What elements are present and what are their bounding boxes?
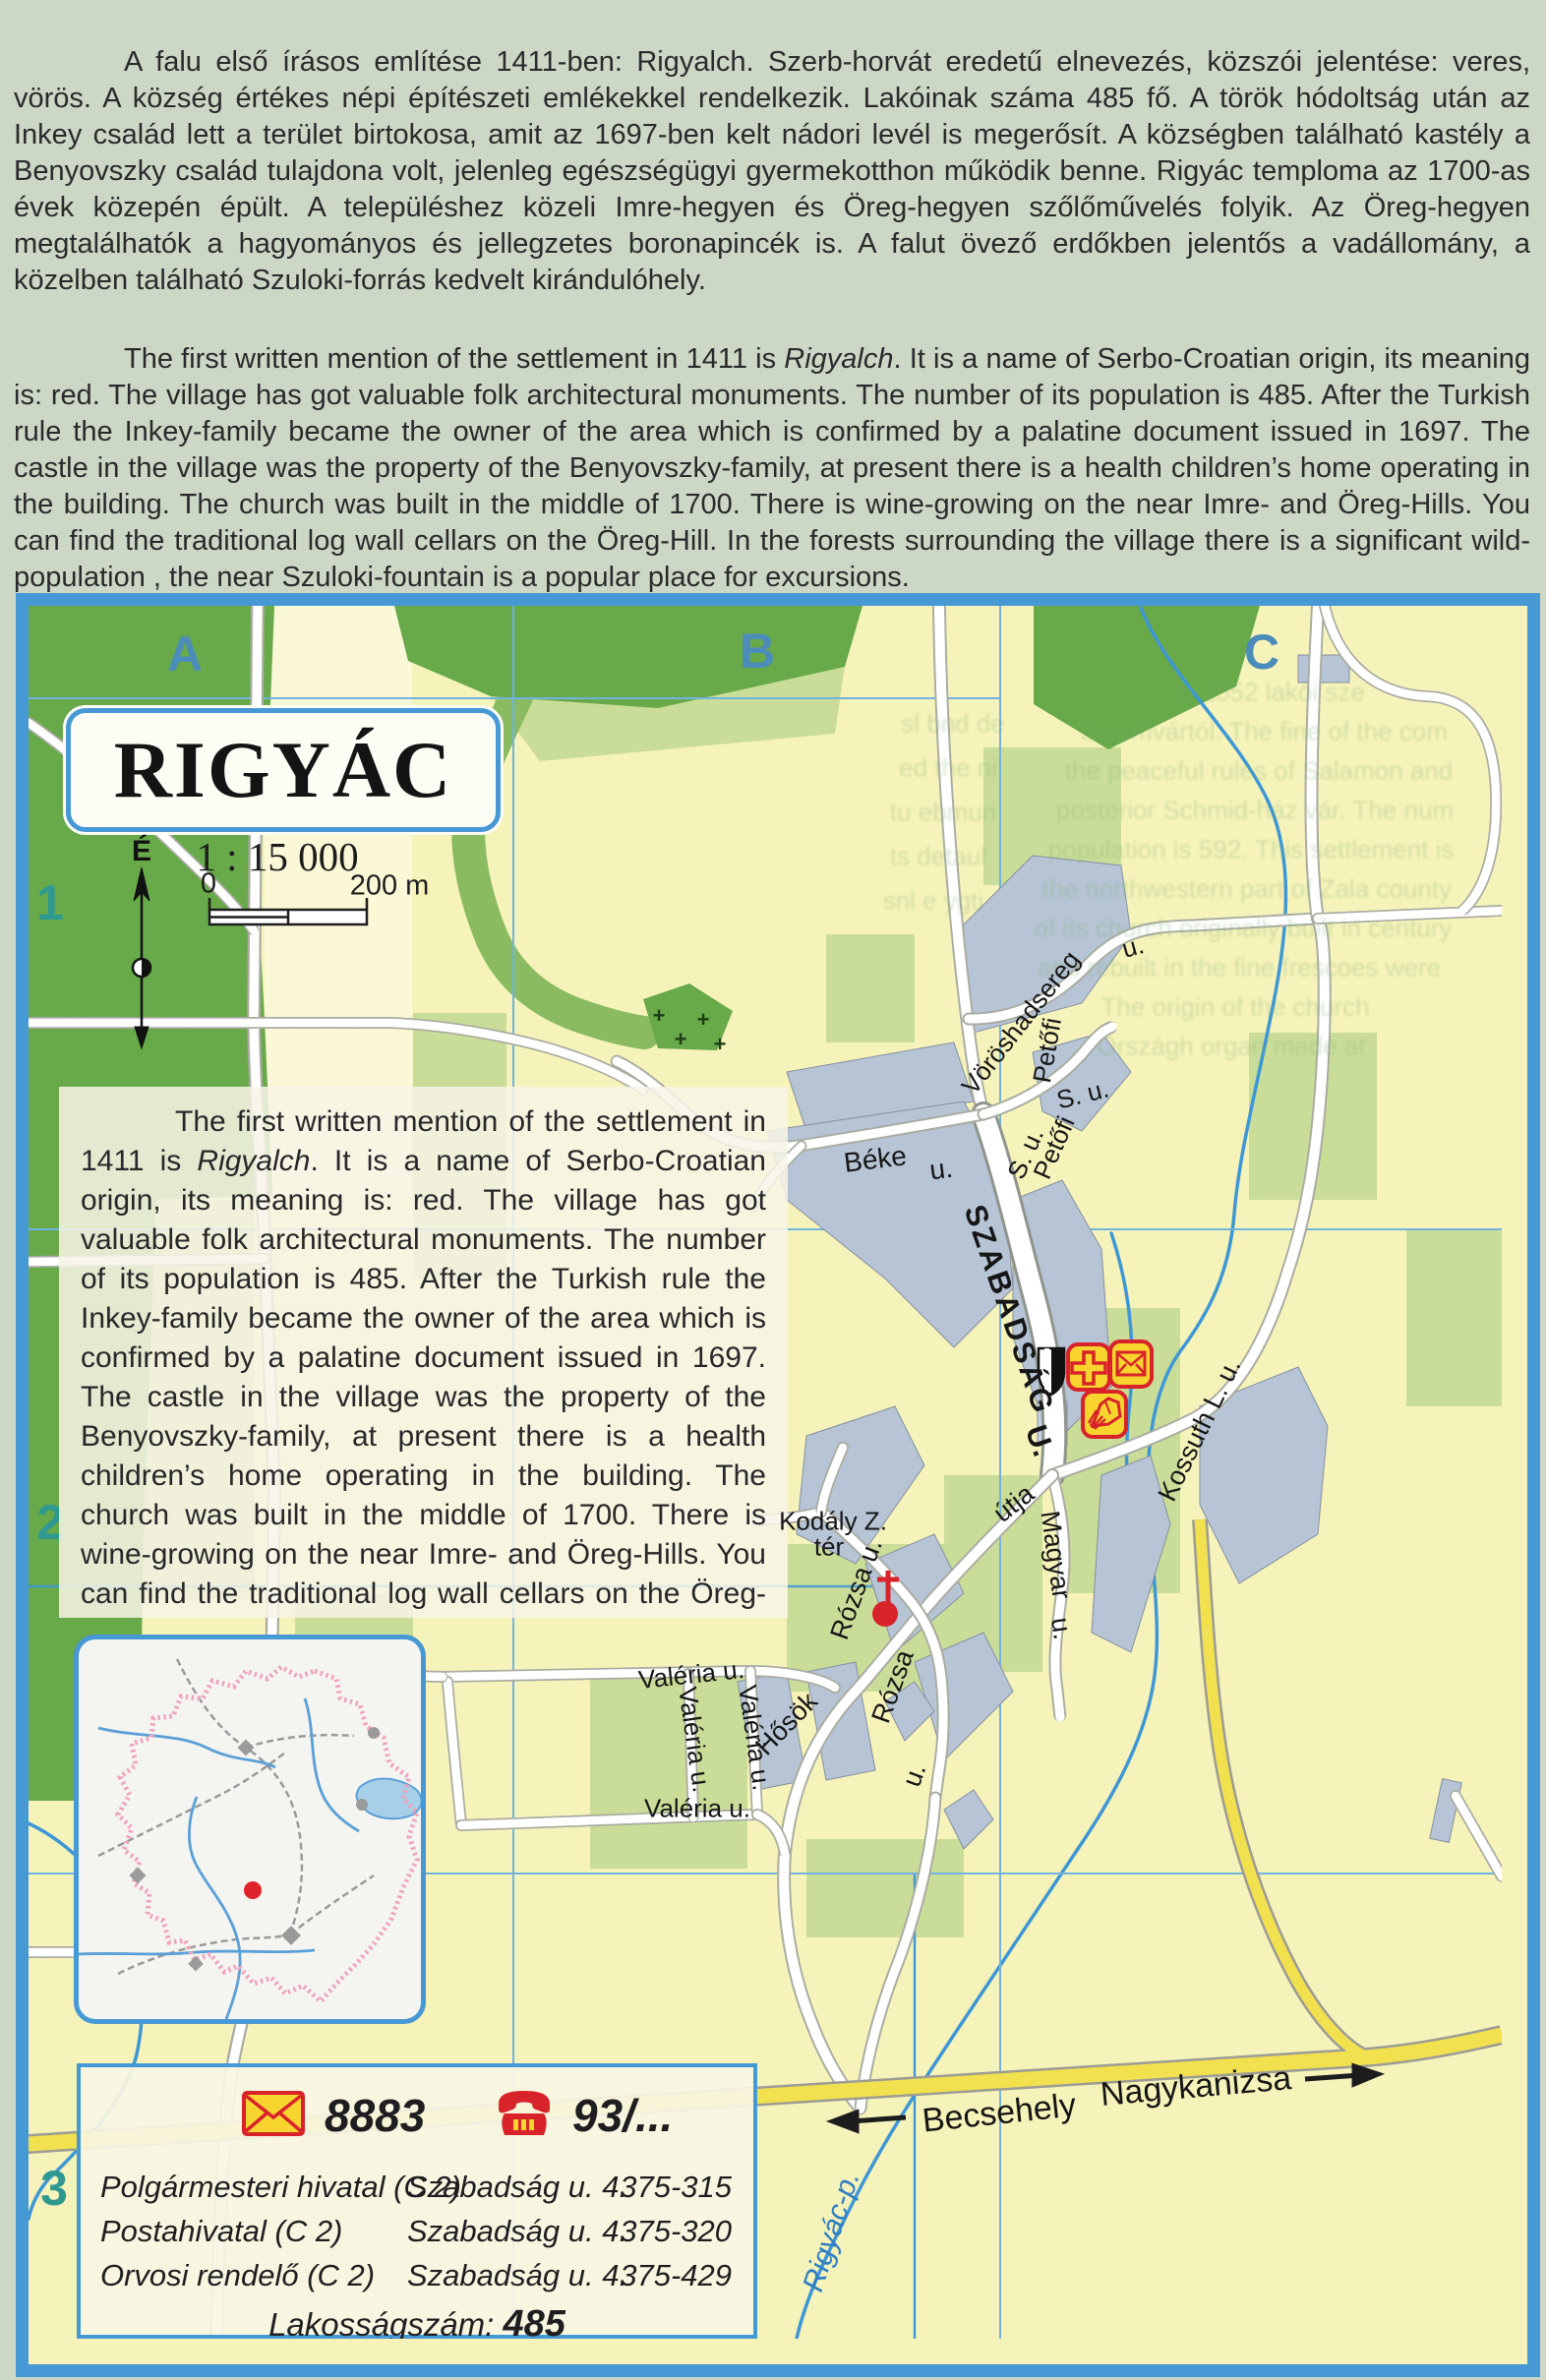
street-label: Kossuth L. u. xyxy=(1153,1353,1248,1506)
intro-paragraph-en: The first written mention of the settlem… xyxy=(14,341,1530,596)
intro-paragraph-hu: A falu első írásos említése 1411-ben: Ri… xyxy=(14,44,1530,299)
orchard-symbol: + xyxy=(653,1003,666,1029)
street-label: u. xyxy=(897,1759,933,1791)
bleed-text: the peaceful rules of Salamon and xyxy=(1065,756,1454,787)
bleed-text: sl bnd de xyxy=(901,709,1005,740)
street-label: Rózsa xyxy=(865,1646,920,1728)
bleed-text: population is 592. This settlement is xyxy=(1048,835,1455,865)
bleed-text: tu ebmun xyxy=(890,798,996,828)
bleed-text: snl e ygti xyxy=(883,886,984,917)
orchard-symbol: + xyxy=(675,1027,687,1052)
bleed-text: Országh organ made at xyxy=(1097,1032,1365,1062)
bleed-text: in 1552 lakói sze xyxy=(1174,678,1365,708)
orchard-symbol: + xyxy=(697,1007,710,1033)
bleed-text: ts detaul xyxy=(890,842,986,872)
atlas-page: A falu első írásos említése 1411-ben: Ri… xyxy=(0,0,1546,2380)
intro-en-before: The first written mention of the settlem… xyxy=(124,343,784,375)
street-label: u. xyxy=(1044,1616,1078,1642)
direction-label-becsehely: Becsehely xyxy=(921,2086,1078,2140)
bleed-text: posterior Schmid-ház vár. The num xyxy=(1056,796,1454,826)
bleed-text: the northwestern part of Zala county xyxy=(1042,874,1452,905)
bleed-text: The origin of the church xyxy=(1100,992,1369,1023)
intro-en-italic: Rigyalch xyxy=(784,343,893,375)
street-label: útja xyxy=(987,1478,1040,1528)
street-label: tér xyxy=(814,1532,844,1563)
street-label: u. xyxy=(927,1153,954,1187)
direction-label-nagykanizsa: Nagykanizsa xyxy=(1099,2059,1292,2114)
stream-label: Rigyác-p. xyxy=(797,2167,866,2295)
bleed-text: of its church originally built in centur… xyxy=(1035,914,1453,944)
street-label: U. xyxy=(1018,1420,1061,1460)
street-label: Béke xyxy=(842,1140,908,1179)
street-label: Valéria u. xyxy=(672,1685,717,1794)
street-label: S. u. xyxy=(1053,1073,1111,1115)
street-labels: Vöröshadseregu.PetőfiS. u.PetőfiS. u.Bék… xyxy=(29,606,1502,2339)
town-map: in 1552 lakói szeSalomvártól. The fine o… xyxy=(16,593,1540,2377)
bleed-text: Salomvártól. The fine of the com xyxy=(1080,717,1448,747)
bleed-text: and rebuilt in the fine frescoes were xyxy=(1038,953,1441,983)
intro-en-after: . It is a name of Serbo-Croatian origin,… xyxy=(14,343,1530,593)
street-label: SZABADSÁG xyxy=(957,1201,1062,1420)
street-label: Magyar xyxy=(1034,1509,1076,1600)
street-label: Valéria u. xyxy=(644,1794,750,1824)
bleed-text: ed the ni xyxy=(899,753,997,784)
orchard-symbol: + xyxy=(714,1032,727,1057)
